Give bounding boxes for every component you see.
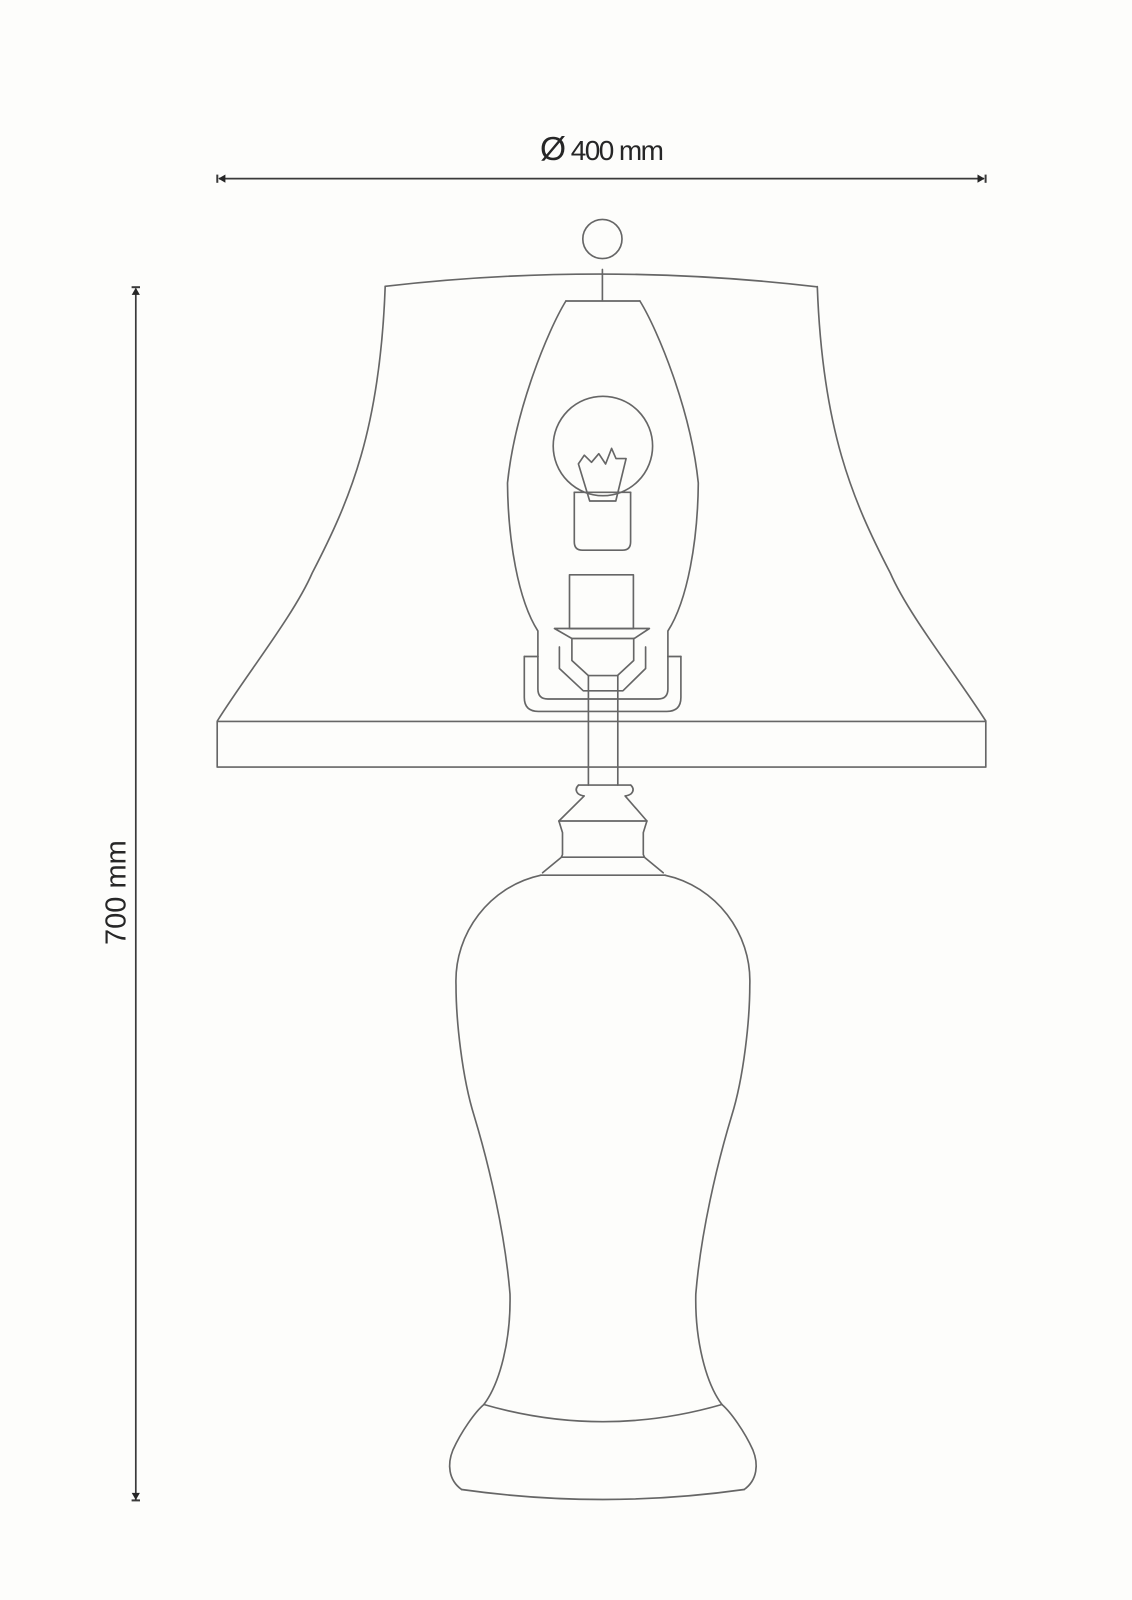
svg-text:700 mm: 700 mm	[101, 840, 133, 945]
svg-text:Ø 400 mm: Ø 400 mm	[540, 131, 664, 168]
